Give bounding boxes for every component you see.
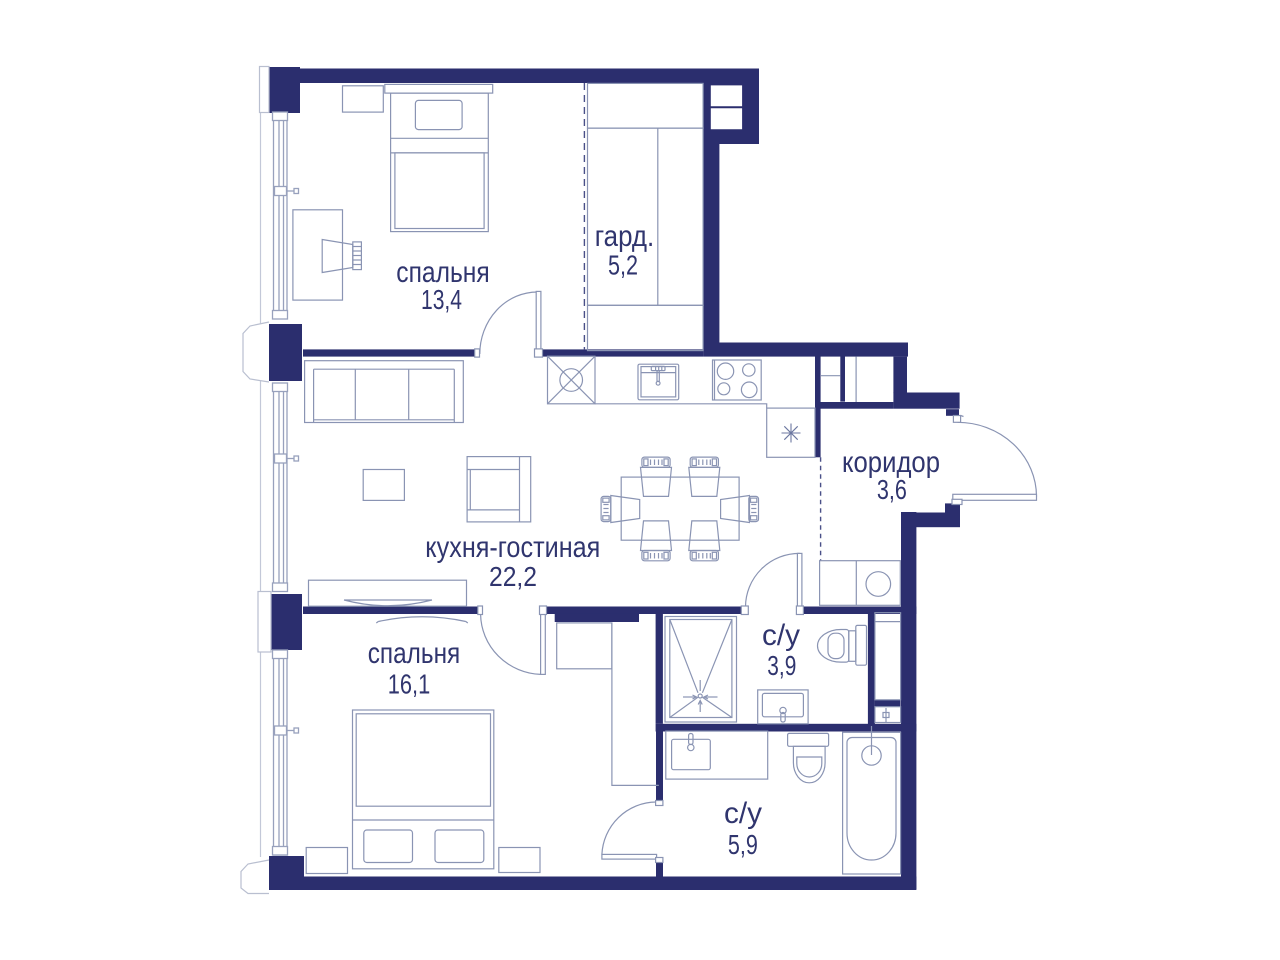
svg-text:гард.: гард. bbox=[595, 220, 654, 253]
svg-text:3,6: 3,6 bbox=[877, 474, 907, 505]
svg-text:5,2: 5,2 bbox=[608, 250, 638, 281]
svg-text:22,2: 22,2 bbox=[489, 561, 537, 592]
svg-text:кухня-гостиная: кухня-гостиная bbox=[425, 531, 600, 564]
svg-text:5,9: 5,9 bbox=[728, 829, 758, 860]
svg-text:3,9: 3,9 bbox=[767, 650, 796, 681]
svg-text:с/у: с/у bbox=[762, 619, 800, 652]
svg-text:спальня: спальня bbox=[368, 637, 461, 670]
svg-text:13,4: 13,4 bbox=[421, 284, 462, 315]
svg-text:с/у: с/у bbox=[724, 797, 762, 830]
svg-text:16,1: 16,1 bbox=[388, 669, 431, 700]
